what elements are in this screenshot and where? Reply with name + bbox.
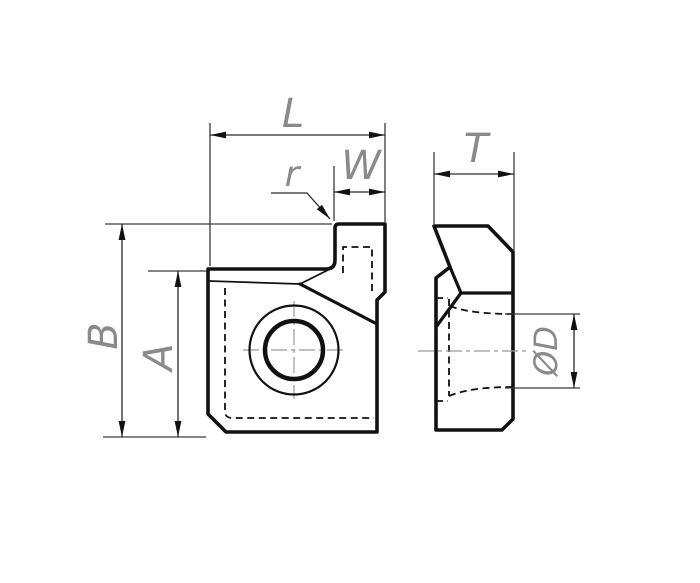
dim-label-B: B <box>81 322 127 349</box>
drawing-canvas: L W r B A T ØD <box>0 0 700 583</box>
dim-label-L: L <box>282 91 304 137</box>
side-view <box>418 226 528 430</box>
dim-r-leader <box>271 193 330 219</box>
dim-label-OD: ØD <box>527 326 565 378</box>
dim-label-W: W <box>341 143 382 189</box>
technical-drawing: L W r B A T ØD <box>0 0 700 583</box>
dim-label-A: A <box>136 343 182 373</box>
dim-label-r: r <box>285 154 302 195</box>
side-view-outline <box>434 226 513 430</box>
front-view <box>208 224 385 432</box>
front-view-outline <box>208 224 385 432</box>
dim-label-T: T <box>464 126 492 172</box>
